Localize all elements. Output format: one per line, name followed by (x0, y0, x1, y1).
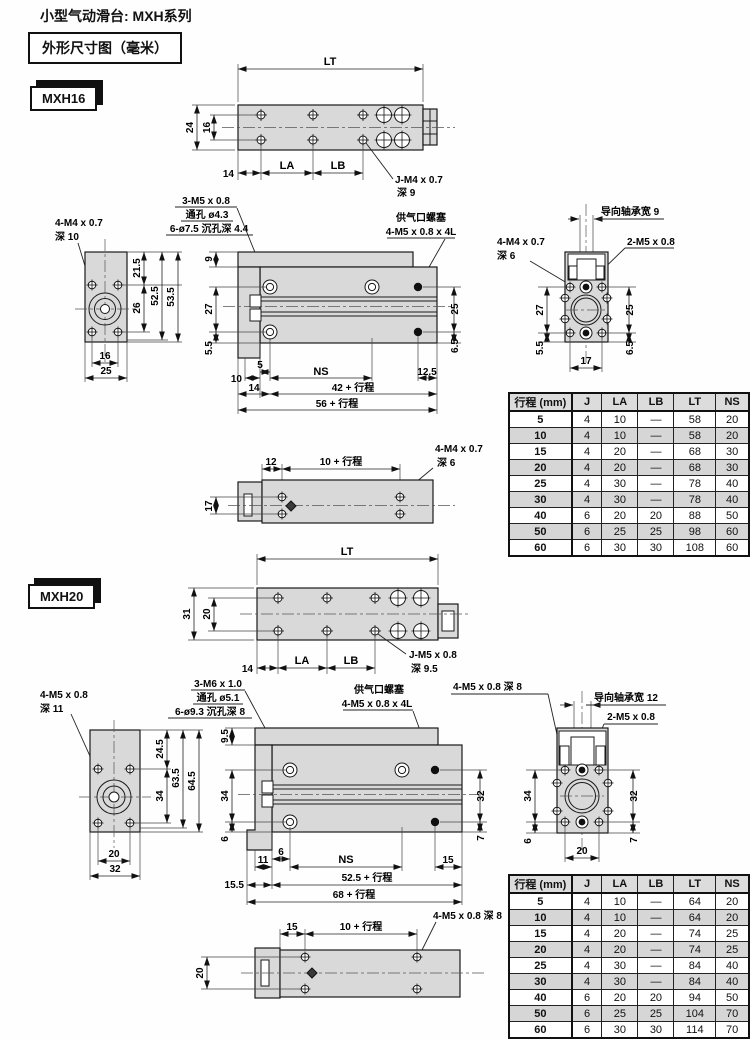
value-cell: 4 (572, 974, 602, 990)
port-hole-icon (576, 816, 588, 828)
value-cell: 20 (638, 508, 674, 524)
value-cell: 25 (638, 1006, 674, 1022)
value-cell: 20 (638, 990, 674, 1006)
stroke-cell: 60 (509, 540, 572, 557)
stroke-cell: 25 (509, 958, 572, 974)
depth-label: 深 6 (497, 249, 516, 262)
table-row: 15420—7425 (509, 926, 749, 942)
hole-spec-label: 3-M6 x 1.0 (194, 679, 242, 690)
value-cell: 20 (602, 942, 638, 958)
dim-34: 34 (523, 790, 534, 802)
port-thread-label: 4-M5 x 0.8 x 4L (386, 227, 457, 238)
value-cell: 20 (716, 411, 749, 428)
dim-25: 25 (450, 303, 461, 315)
dim-14: 14 (223, 169, 235, 180)
dim-6: 6 (220, 836, 231, 842)
value-cell: 58 (674, 411, 716, 428)
port-hole-icon (576, 764, 588, 776)
dim-16: 16 (99, 351, 111, 362)
dim-9: 9 (204, 256, 215, 262)
column-header: LT (674, 393, 716, 411)
stroke-cell: 50 (509, 524, 572, 540)
dim-25: 25 (625, 304, 636, 316)
dim-20: 20 (108, 849, 120, 860)
counterbore-label: 6-ø7.5 沉孔深 4.4 (170, 222, 249, 235)
column-header: LB (638, 875, 674, 893)
table-row: 50625259860 (509, 524, 749, 540)
port-thread-label: 2-M5 x 0.8 (627, 237, 675, 248)
value-cell: 20 (602, 926, 638, 942)
column-header: LA (602, 393, 638, 411)
value-cell: — (638, 942, 674, 958)
stroke-cell: 30 (509, 492, 572, 508)
value-cell: 30 (716, 460, 749, 476)
table-row: 30430—7840 (509, 492, 749, 508)
mxh16-dimensions-table: 行程 (mm)JLALBLTNS5410—582010410—582015420… (508, 392, 750, 557)
dim-lt: LT (341, 546, 354, 558)
dim-lb: LB (331, 160, 346, 172)
value-cell: 84 (674, 974, 716, 990)
value-cell: 25 (602, 524, 638, 540)
mxh20-dimensions-table: 行程 (mm)JLALBLTNS5410—642010410—642015420… (508, 874, 750, 1039)
dim-stroke-68: 68 + 行程 (333, 888, 376, 901)
port-plug-label: 供气口螺塞 (353, 683, 405, 696)
value-cell: 20 (716, 910, 749, 926)
dim-6-5: 6.5 (450, 339, 461, 353)
value-cell: — (638, 428, 674, 444)
dim-6-5: 6.5 (625, 341, 636, 355)
table-row: 5410—5820 (509, 411, 749, 428)
stroke-cell: 10 (509, 428, 572, 444)
stroke-cell: 20 (509, 942, 572, 958)
column-header: 行程 (mm) (509, 393, 572, 411)
table-row: 40620208850 (509, 508, 749, 524)
value-cell: 68 (674, 460, 716, 476)
mxh20-end-view: 4-M5 x 0.8 深 8 导向轴承宽 12 2-M5 x 0.8 34 6 … (438, 673, 716, 898)
value-cell: 4 (572, 444, 602, 460)
stroke-cell: 20 (509, 460, 572, 476)
subtitle: 外形尺寸图（毫米） (42, 40, 168, 56)
value-cell: 78 (674, 476, 716, 492)
value-cell: 20 (602, 444, 638, 460)
value-cell: 4 (572, 910, 602, 926)
through-hole-label: 通孔 ø4.3 (186, 208, 229, 221)
stroke-cell: 25 (509, 476, 572, 492)
value-cell: 4 (572, 428, 602, 444)
column-header: LA (602, 875, 638, 893)
thread-label: 4-M5 x 0.8 深 8 (453, 680, 522, 693)
counterbore-hole-icon (365, 280, 379, 294)
dim-5-5: 5.5 (204, 341, 215, 355)
value-cell: 108 (674, 540, 716, 557)
dim-ns: NS (338, 854, 353, 866)
dim-27: 27 (204, 303, 215, 315)
dim-stroke-56: 56 + 行程 (316, 397, 359, 410)
value-cell: — (638, 926, 674, 942)
value-cell: 30 (602, 974, 638, 990)
dim-25: 25 (100, 366, 112, 377)
value-cell: — (638, 910, 674, 926)
value-cell: 84 (674, 958, 716, 974)
value-cell: — (638, 974, 674, 990)
stroke-cell: 5 (509, 893, 572, 910)
value-cell: 20 (602, 460, 638, 476)
thread-label: J-M5 x 0.8 (409, 650, 457, 661)
value-cell: 60 (716, 540, 749, 557)
dim-11: 11 (258, 855, 269, 866)
value-cell: 30 (602, 540, 638, 557)
value-cell: 6 (572, 1006, 602, 1022)
value-cell: 4 (572, 958, 602, 974)
table-row: 506252510470 (509, 1006, 749, 1022)
dim-7: 7 (629, 837, 640, 843)
value-cell: 20 (602, 990, 638, 1006)
mxh16-front-view: 3-M5 x 0.8 通孔 ø4.3 6-ø7.5 沉孔深 4.4 供气口螺塞 … (163, 188, 503, 428)
bearing-width-label: 导向轴承宽 9 (601, 205, 660, 218)
value-cell: 50 (716, 508, 749, 524)
value-cell: — (638, 411, 674, 428)
stroke-cell: 15 (509, 926, 572, 942)
dim-20: 20 (202, 608, 213, 620)
value-cell: 4 (572, 942, 602, 958)
port-hole-icon (580, 281, 592, 293)
value-cell: 68 (674, 444, 716, 460)
value-cell: 58 (674, 428, 716, 444)
value-cell: 4 (572, 492, 602, 508)
port-hole-icon (580, 327, 592, 339)
dim-26: 26 (132, 302, 143, 314)
port-thread-label: 4-M5 x 0.8 x 4L (342, 699, 413, 710)
dim-27: 27 (535, 304, 546, 316)
value-cell: 6 (572, 508, 602, 524)
value-cell: 25 (716, 926, 749, 942)
counterbore-hole-icon (395, 763, 409, 777)
table-row: 30430—8440 (509, 974, 749, 990)
value-cell: 40 (716, 958, 749, 974)
value-cell: — (638, 460, 674, 476)
table-row: 20420—6830 (509, 460, 749, 476)
dim-20: 20 (576, 846, 588, 857)
port-plug-icon (414, 283, 422, 291)
dim-ns: NS (313, 366, 328, 378)
table-row: 5410—6420 (509, 893, 749, 910)
dim-17: 17 (204, 500, 215, 512)
value-cell: — (638, 492, 674, 508)
table-row: 40620209450 (509, 990, 749, 1006)
value-cell: 20 (602, 508, 638, 524)
thread-label: 4-M5 x 0.8 深 8 (433, 909, 502, 922)
table-row: 20420—7425 (509, 942, 749, 958)
value-cell: 10 (602, 411, 638, 428)
dim-10: 10 (231, 374, 243, 385)
value-cell: 4 (572, 476, 602, 492)
hole-spec-label: 3-M5 x 0.8 (182, 196, 230, 207)
page-title: 小型气动滑台: MXH系列 (40, 6, 192, 26)
table-row: 15420—6830 (509, 444, 749, 460)
dim-6b: 6 (278, 847, 284, 858)
mxh16-end-view: 导向轴承宽 9 4-M4 x 0.7 深 6 2-M5 x 0.8 27 5.5… (488, 188, 700, 400)
dim-la: LA (280, 160, 295, 172)
value-cell: 6 (572, 540, 602, 557)
value-cell: 30 (638, 1022, 674, 1039)
stroke-cell: 50 (509, 1006, 572, 1022)
value-cell: 40 (716, 492, 749, 508)
value-cell: 30 (602, 476, 638, 492)
value-cell: 40 (716, 974, 749, 990)
port-plug-icon (414, 328, 422, 336)
table-row: 606303010860 (509, 540, 749, 557)
value-cell: 50 (716, 990, 749, 1006)
value-cell: 64 (674, 910, 716, 926)
stroke-cell: 30 (509, 974, 572, 990)
dim-21-5: 21.5 (132, 258, 143, 278)
value-cell: 30 (602, 1022, 638, 1039)
through-hole-label: 通孔 ø5.1 (197, 691, 240, 704)
value-cell: 74 (674, 942, 716, 958)
value-cell: — (638, 893, 674, 910)
column-header: J (572, 393, 602, 411)
value-cell: 74 (674, 926, 716, 942)
table-row: 10410—5820 (509, 428, 749, 444)
column-header: NS (716, 393, 749, 411)
dim-15: 15 (286, 922, 298, 933)
value-cell: — (638, 444, 674, 460)
dim-12: 12 (265, 457, 277, 468)
value-cell: 70 (716, 1022, 749, 1039)
value-cell: 60 (716, 524, 749, 540)
port-thread-label: 2-M5 x 0.8 (607, 712, 655, 723)
value-cell: 78 (674, 492, 716, 508)
value-cell: 30 (602, 958, 638, 974)
dim-5: 5 (257, 360, 263, 371)
value-cell: 98 (674, 524, 716, 540)
dim-6: 6 (523, 838, 534, 844)
thread-label: J-M4 x 0.7 (395, 175, 443, 186)
value-cell: 114 (674, 1022, 716, 1039)
dim-14: 14 (248, 383, 260, 394)
stroke-cell: 60 (509, 1022, 572, 1039)
value-cell: 25 (602, 1006, 638, 1022)
value-cell: 6 (572, 524, 602, 540)
dim-31: 31 (182, 608, 193, 620)
dim-17: 17 (580, 356, 592, 367)
value-cell: 6 (572, 1022, 602, 1039)
counterbore-label: 6-ø9.3 沉孔深 8 (175, 705, 245, 718)
dim-la: LA (295, 655, 310, 667)
dim-lt: LT (324, 56, 337, 68)
value-cell: 25 (716, 942, 749, 958)
mxh16-top-view: LT 24 16 14 LA LB J-M4 x 0.7 深 9 (170, 52, 470, 197)
value-cell: 4 (572, 411, 602, 428)
column-header: 行程 (mm) (509, 875, 572, 893)
port-plug-label: 供气口螺塞 (395, 211, 447, 224)
dim-12-5: 12.5 (417, 367, 437, 378)
value-cell: 10 (602, 893, 638, 910)
value-cell: 6 (572, 990, 602, 1006)
model-label-mxh16: MXH16 (30, 86, 97, 111)
value-cell: 64 (674, 893, 716, 910)
dim-5-5: 5.5 (535, 341, 546, 355)
dim-32: 32 (109, 864, 121, 875)
stroke-cell: 40 (509, 508, 572, 524)
value-cell: — (638, 958, 674, 974)
dim-20: 20 (195, 967, 206, 979)
bearing-width-label: 导向轴承宽 12 (594, 691, 658, 704)
column-header: LT (674, 875, 716, 893)
mxh16-bottom-view: 12 10 + 行程 4-M4 x 0.7 深 6 17 (203, 438, 500, 553)
column-header: LB (638, 393, 674, 411)
value-cell: 10 (602, 910, 638, 926)
value-cell: 30 (602, 492, 638, 508)
mxh20-bottom-view: 15 10 + 行程 4-M5 x 0.8 深 8 20 (193, 903, 508, 1040)
stroke-cell: 5 (509, 411, 572, 428)
value-cell: 4 (572, 893, 602, 910)
table-row: 10410—6420 (509, 910, 749, 926)
column-header: J (572, 875, 602, 893)
dim-stroke-52-5: 52.5 + 行程 (342, 871, 393, 884)
dim-24: 24 (185, 122, 196, 134)
value-cell: 94 (674, 990, 716, 1006)
depth-label: 深 11 (40, 702, 64, 715)
value-cell: 4 (572, 926, 602, 942)
dim-stroke-10: 10 + 行程 (340, 920, 383, 933)
model-label-mxh20: MXH20 (28, 584, 95, 609)
value-cell: 40 (716, 476, 749, 492)
dim-lb: LB (344, 655, 359, 667)
column-header: NS (716, 875, 749, 893)
value-cell: 30 (716, 444, 749, 460)
value-cell: 25 (638, 524, 674, 540)
value-cell: — (638, 476, 674, 492)
thread-label: 4-M4 x 0.7 (55, 218, 103, 229)
dim-34: 34 (220, 790, 231, 802)
thread-label: 4-M5 x 0.8 (40, 690, 88, 701)
value-cell: 20 (716, 428, 749, 444)
subtitle-box: 外形尺寸图（毫米） (28, 32, 182, 64)
table-row: 606303011470 (509, 1022, 749, 1039)
dim-15-5: 15.5 (225, 880, 245, 891)
dim-stroke-10: 10 + 行程 (320, 455, 363, 468)
value-cell: 4 (572, 460, 602, 476)
value-cell: 20 (716, 893, 749, 910)
table-row: 25430—8440 (509, 958, 749, 974)
value-cell: 10 (602, 428, 638, 444)
stroke-cell: 15 (509, 444, 572, 460)
thread-label: 4-M4 x 0.7 (497, 237, 545, 248)
depth-label: 深 6 (437, 456, 456, 469)
table-row: 25430—7840 (509, 476, 749, 492)
value-cell: 70 (716, 1006, 749, 1022)
value-cell: 88 (674, 508, 716, 524)
dim-9-5: 9.5 (220, 729, 231, 743)
dim-52-5: 52.5 (150, 286, 161, 306)
dim-stroke-42: 42 + 行程 (332, 381, 375, 394)
thread-label: 4-M4 x 0.7 (435, 444, 483, 455)
value-cell: 30 (638, 540, 674, 557)
depth-label: 深 10 (55, 230, 79, 243)
page: 小型气动滑台: MXH系列 外形尺寸图（毫米） MXH16 MXH20 LT 2… (0, 0, 750, 1040)
dim-32: 32 (629, 790, 640, 802)
stroke-cell: 10 (509, 910, 572, 926)
value-cell: 104 (674, 1006, 716, 1022)
stroke-cell: 40 (509, 990, 572, 1006)
dim-16: 16 (202, 122, 213, 134)
